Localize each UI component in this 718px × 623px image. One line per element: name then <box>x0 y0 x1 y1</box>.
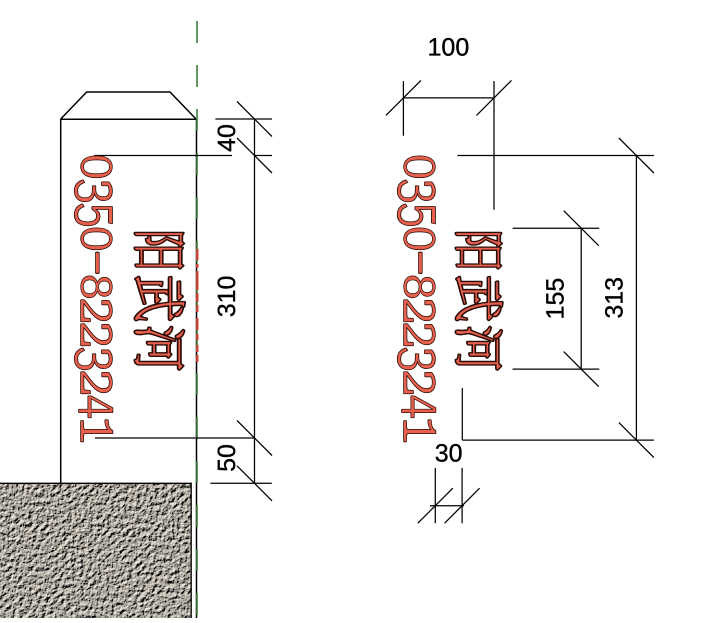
svg-text:155: 155 <box>542 278 570 320</box>
svg-text:313: 313 <box>601 277 629 319</box>
svg-text:50: 50 <box>213 444 241 472</box>
svg-text:310: 310 <box>213 276 241 318</box>
svg-text:30: 30 <box>435 440 463 468</box>
svg-text:100: 100 <box>428 34 470 62</box>
svg-text:40: 40 <box>213 124 241 152</box>
